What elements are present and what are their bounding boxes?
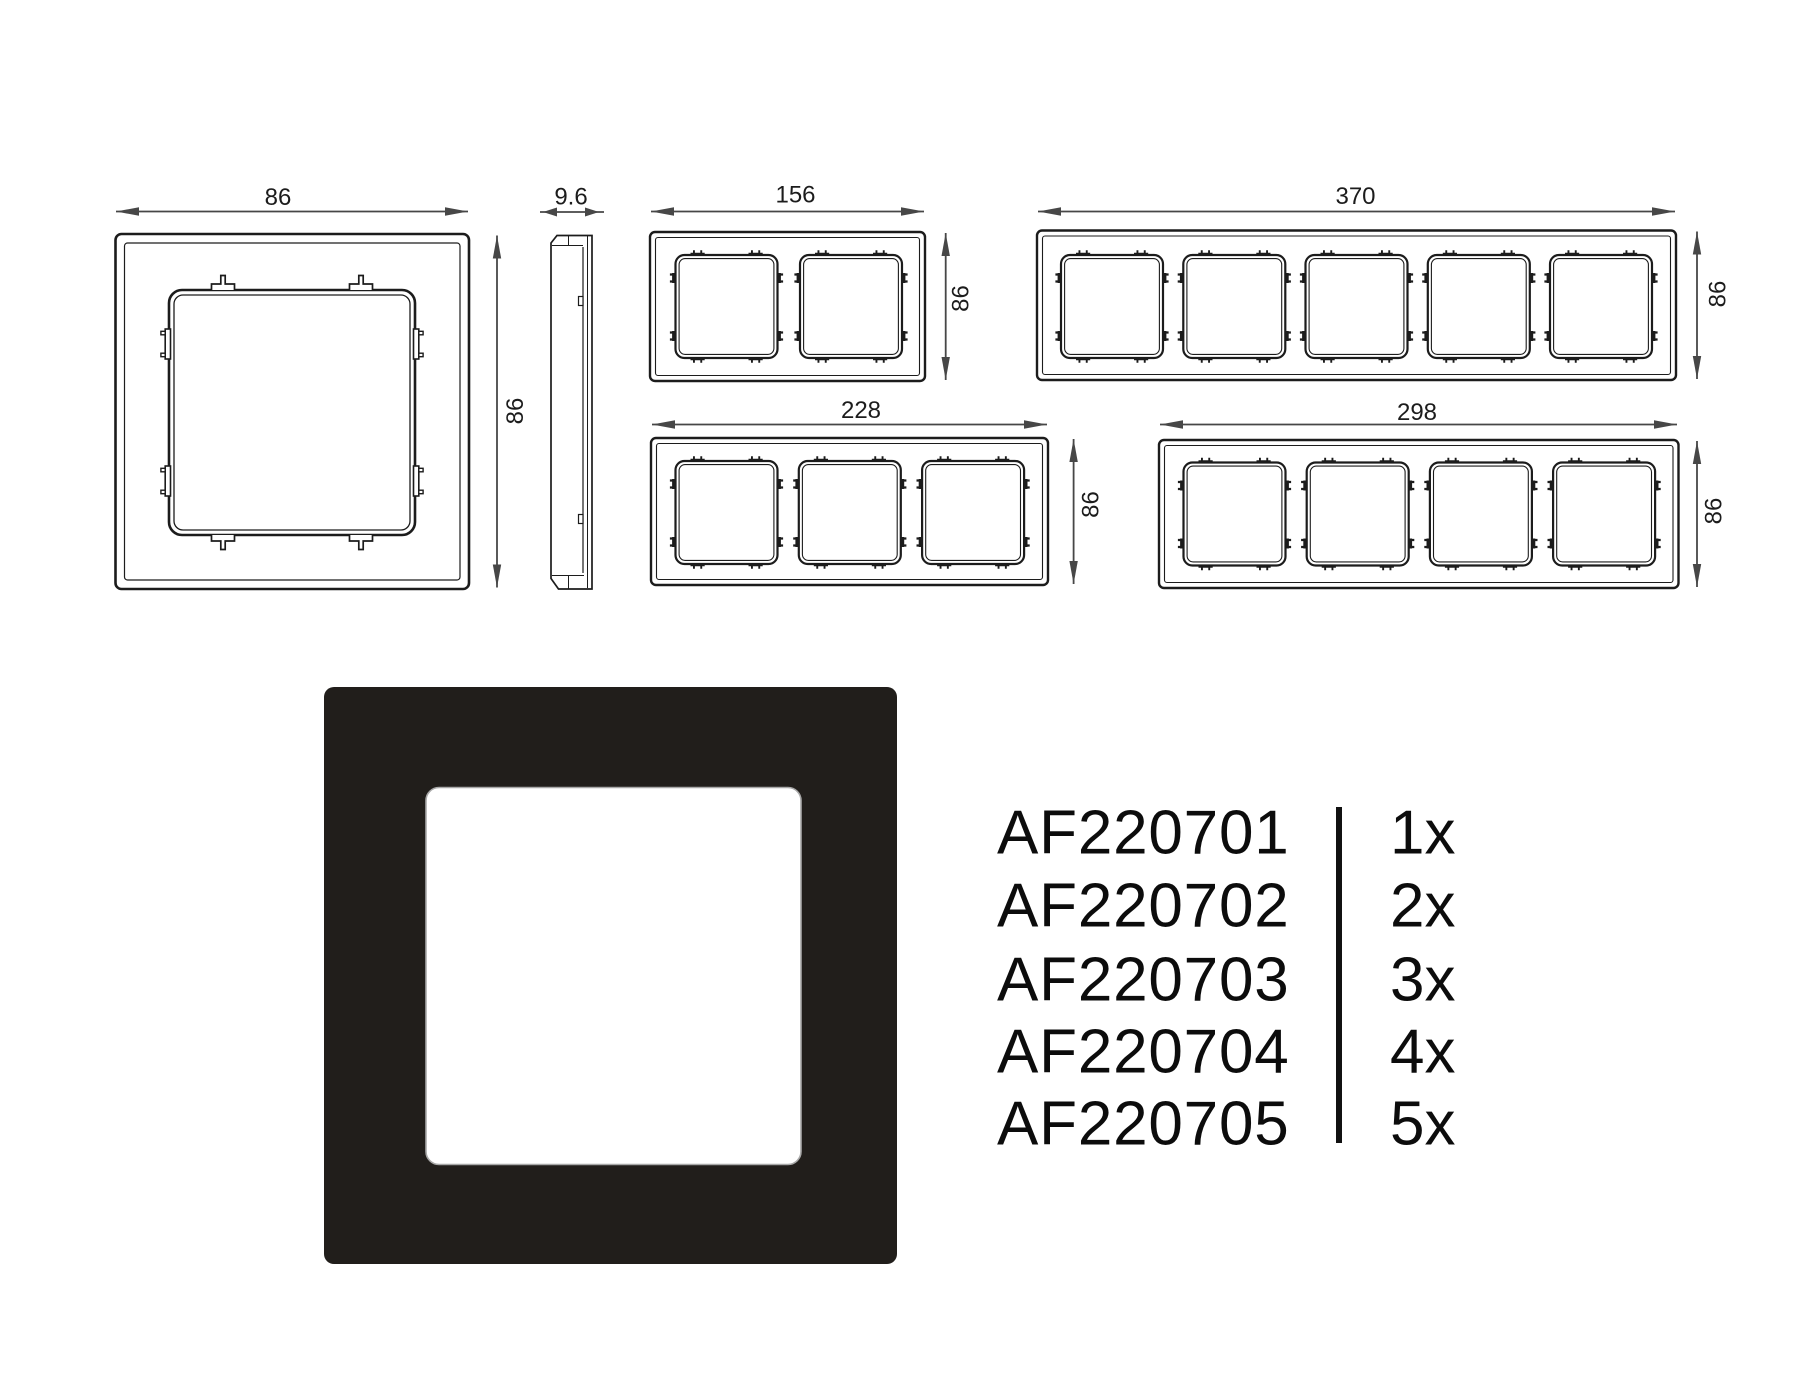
svg-text:156: 156 bbox=[775, 182, 815, 209]
svg-text:370: 370 bbox=[1335, 183, 1375, 210]
svg-text:9.6: 9.6 bbox=[554, 184, 587, 211]
svg-text:228: 228 bbox=[841, 397, 881, 424]
svg-text:AF220702: AF220702 bbox=[997, 872, 1290, 941]
svg-text:86: 86 bbox=[1078, 491, 1105, 518]
svg-text:AF220701: AF220701 bbox=[997, 799, 1290, 868]
svg-text:298: 298 bbox=[1397, 399, 1437, 426]
svg-text:86: 86 bbox=[1705, 281, 1732, 308]
svg-text:AF220703: AF220703 bbox=[997, 946, 1290, 1015]
svg-text:3x: 3x bbox=[1390, 946, 1455, 1015]
svg-text:86: 86 bbox=[502, 398, 529, 425]
svg-text:86: 86 bbox=[948, 285, 975, 312]
svg-text:2x: 2x bbox=[1390, 872, 1455, 941]
svg-text:86: 86 bbox=[1701, 498, 1728, 525]
svg-text:86: 86 bbox=[265, 184, 292, 211]
svg-text:1x: 1x bbox=[1390, 799, 1455, 868]
svg-text:AF220704: AF220704 bbox=[997, 1018, 1290, 1087]
svg-text:AF220705: AF220705 bbox=[997, 1090, 1290, 1159]
svg-text:4x: 4x bbox=[1390, 1018, 1455, 1087]
svg-text:5x: 5x bbox=[1390, 1090, 1455, 1159]
